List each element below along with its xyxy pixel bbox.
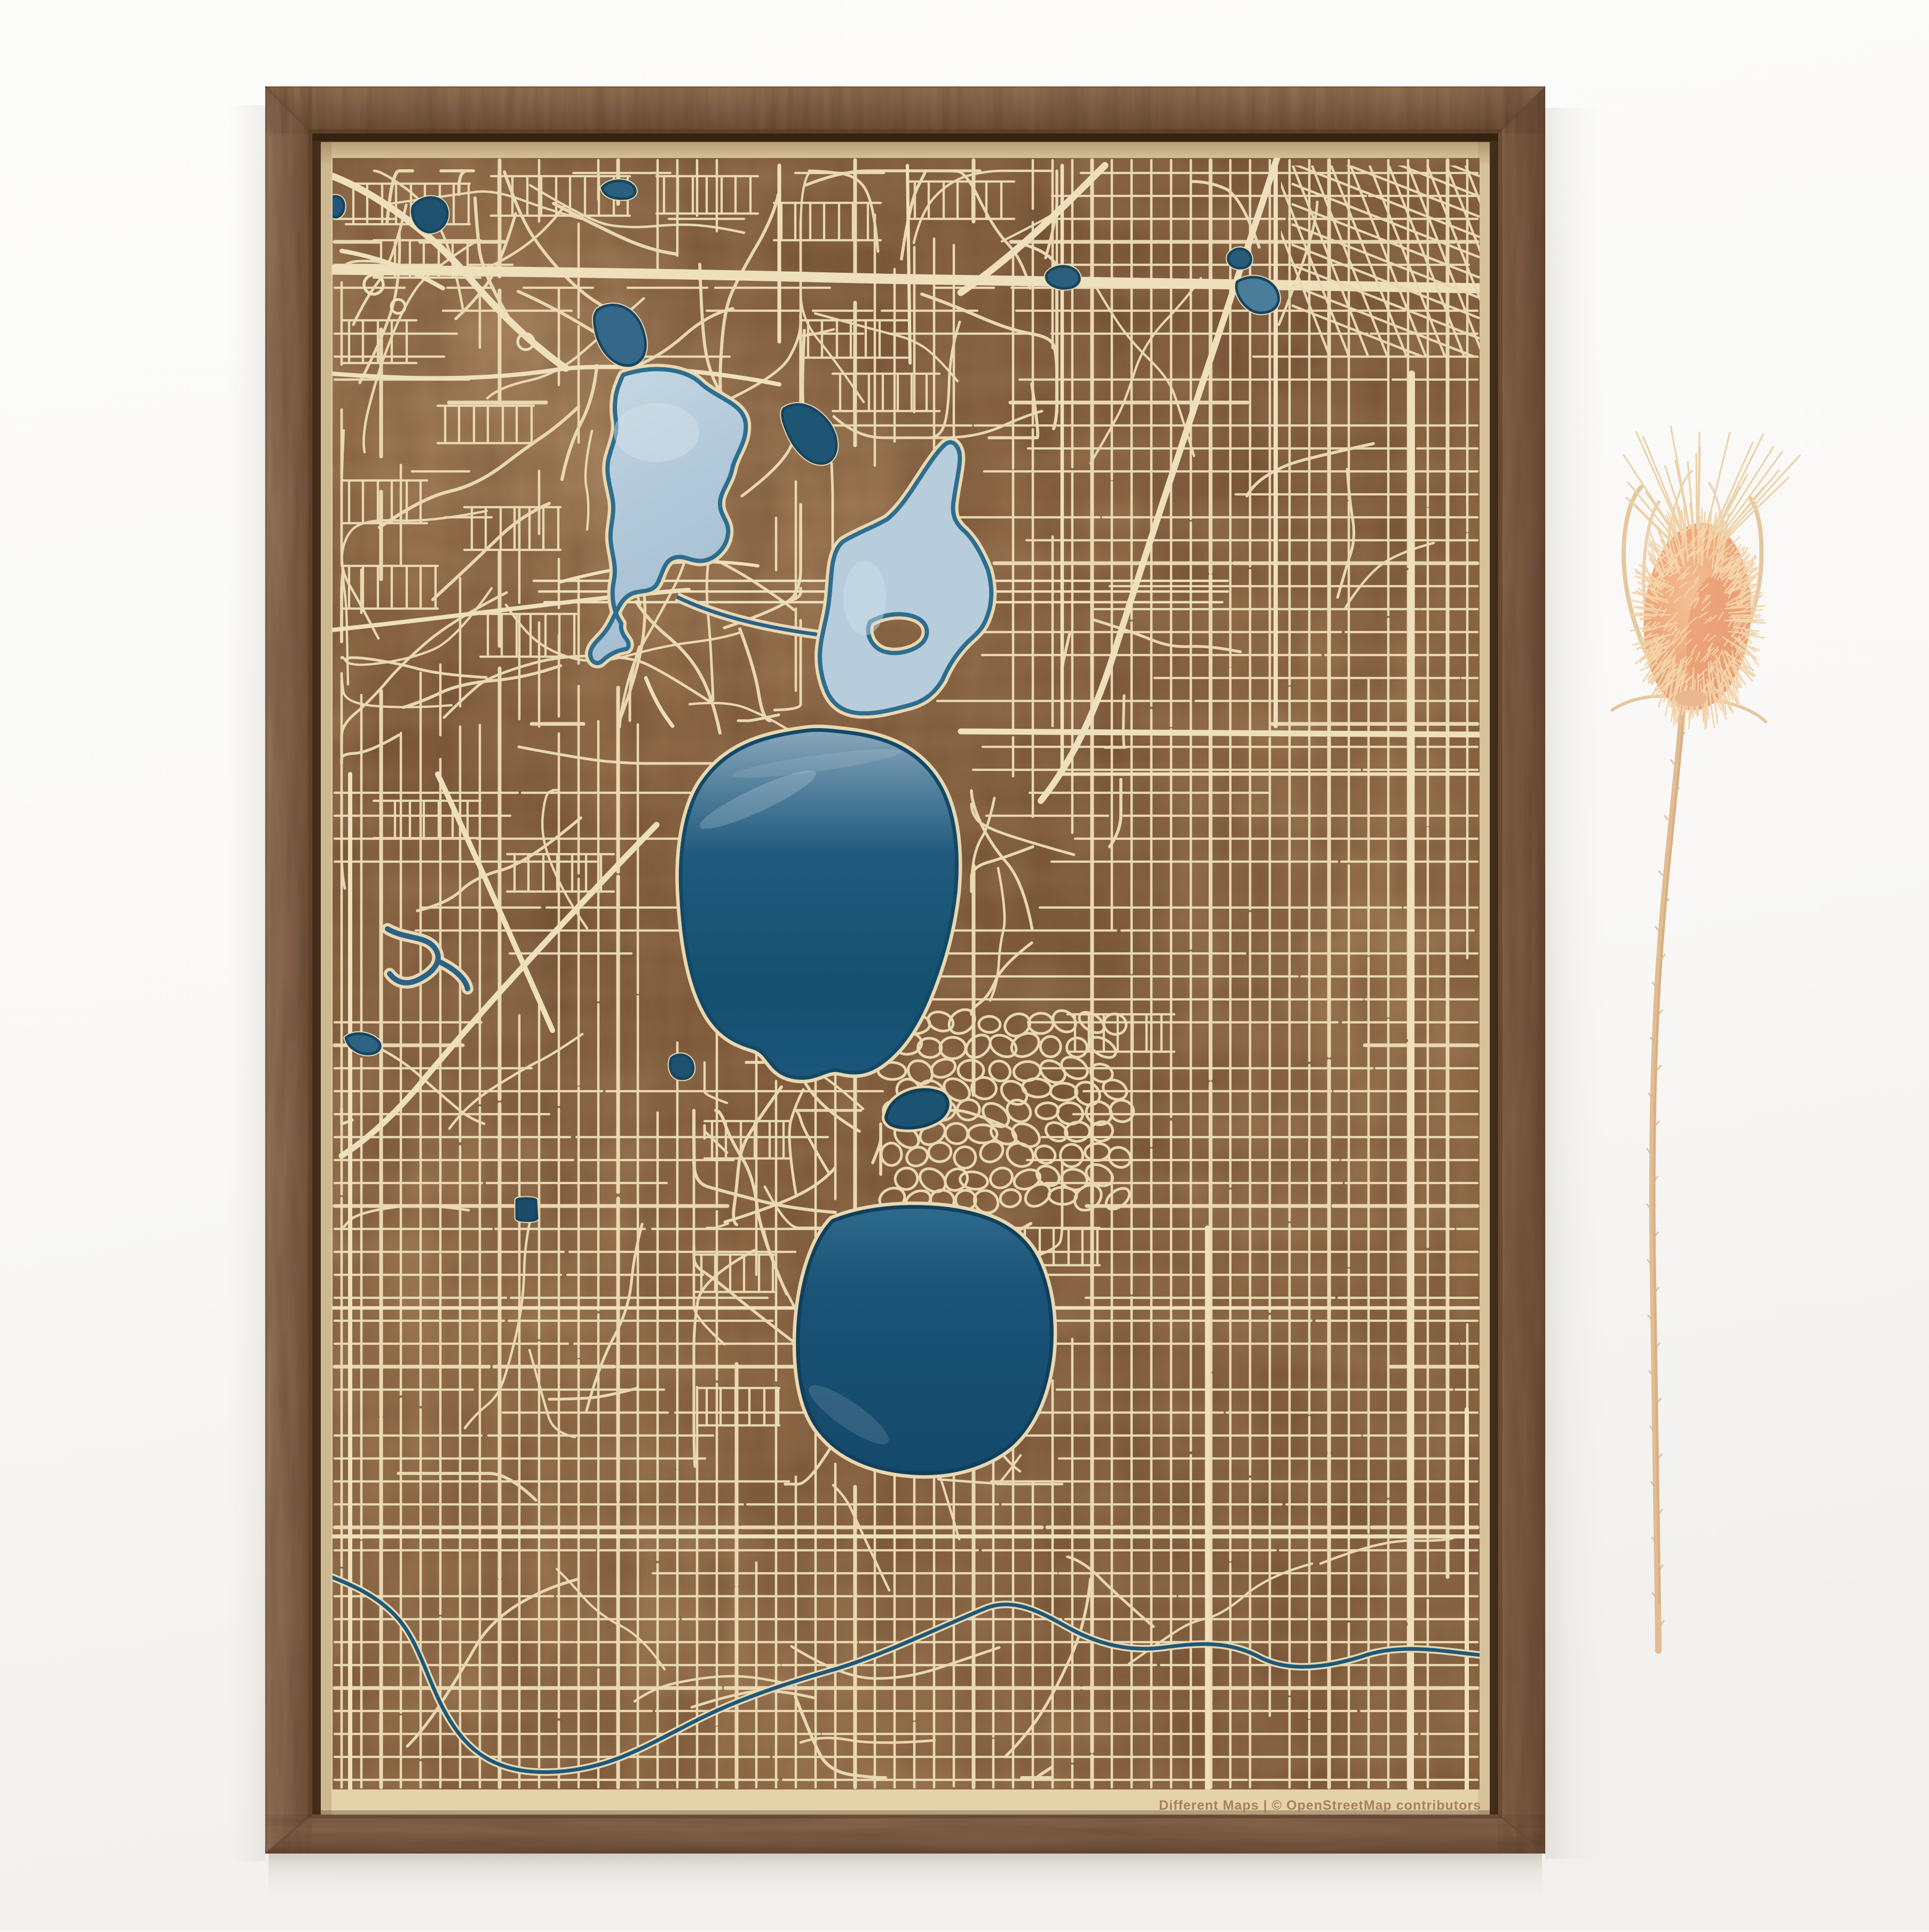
svg-text:Different Maps | © OpenStreetM: Different Maps | © OpenStreetMap contrib… <box>1159 1798 1481 1813</box>
